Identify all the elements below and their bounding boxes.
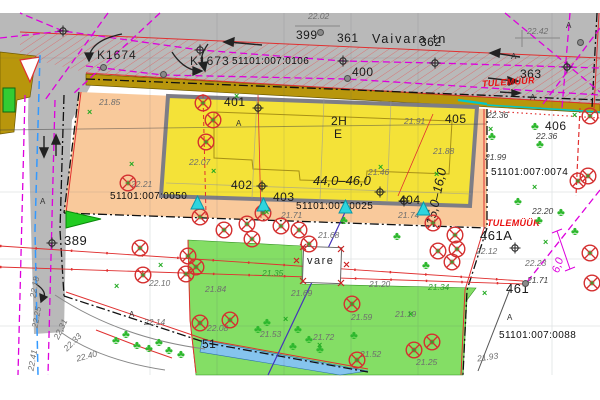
benchmark-icon <box>398 194 410 206</box>
map-label: 22.33 <box>62 332 83 353</box>
map-label: 51 <box>202 338 216 350</box>
entrance-arrow-icon <box>416 201 431 216</box>
manhole-icon <box>344 75 351 82</box>
entrance-arrow-icon <box>190 195 205 210</box>
map-label: A <box>40 198 45 206</box>
map-label: 21.20 <box>369 280 390 289</box>
benchmark-icon <box>194 43 206 55</box>
tree-icon: ♣ <box>557 206 565 218</box>
tree-icon: ♣ <box>155 336 163 348</box>
tree-icon: ♣ <box>393 230 401 242</box>
removed-tree-icon <box>191 314 209 332</box>
vegetation-mark-icon: × <box>129 160 134 169</box>
vegetation-mark-icon: × <box>543 238 548 247</box>
removed-tree-icon <box>197 133 215 151</box>
map-label: 21.91 <box>404 117 425 126</box>
map-label: 22.42 <box>527 27 548 36</box>
vegetation-mark-icon: × <box>378 163 383 172</box>
vegetation-mark-icon: × <box>434 170 439 179</box>
tree-icon: ♣ <box>535 214 543 226</box>
tree-icon: ♣ <box>536 138 544 150</box>
vegetation-mark-icon: × <box>317 341 322 350</box>
removed-tree-icon <box>424 214 442 232</box>
manhole-icon <box>100 64 107 71</box>
map-label: 22.31 <box>52 318 69 341</box>
manhole-icon <box>522 280 529 287</box>
map-label: 22.07 <box>189 158 210 167</box>
vegetation-mark-icon: × <box>211 167 216 176</box>
removed-tree-icon <box>423 333 441 351</box>
removed-tree-icon <box>272 217 290 235</box>
removed-tree-icon <box>131 239 149 257</box>
vegetation-mark-icon: × <box>114 282 119 291</box>
map-label: 22.14 <box>144 318 165 327</box>
map-label: 22.23 <box>525 259 546 268</box>
tree-icon: ♣ <box>165 344 173 356</box>
vegetation-mark-icon: × <box>532 183 537 192</box>
vegetation-mark-icon: × <box>87 108 92 117</box>
map-label: 362 <box>420 36 442 48</box>
map-label: K1674 <box>97 49 137 61</box>
removed-tree-icon <box>443 253 461 271</box>
map-label: 21.88 <box>433 147 454 156</box>
removed-tree-icon <box>177 265 195 283</box>
removed-tree-icon <box>583 274 600 292</box>
manhole-icon <box>577 39 584 46</box>
map-label: 21.35 <box>262 269 283 278</box>
benchmark-icon <box>561 60 573 72</box>
tree-icon: ♣ <box>254 323 262 335</box>
map-label: 22.18 <box>29 276 41 298</box>
map-label: 403 <box>273 191 295 203</box>
removed-tree-icon <box>221 311 239 329</box>
tree-icon: ♣ <box>112 334 120 346</box>
map-label: 21.71 <box>527 276 548 285</box>
vegetation-mark-icon: × <box>264 208 269 217</box>
map-label: A <box>129 311 134 319</box>
symbol-layer: 22.02399361Vaivara tn362K1674K167351101:… <box>0 0 600 400</box>
map-label: TULEMÜÜR <box>482 76 535 89</box>
map-label: 399 <box>296 29 318 41</box>
map-label: 361 <box>337 32 359 44</box>
map-label: 22.02 <box>308 12 329 21</box>
map-label: 22.10 <box>149 279 170 288</box>
map-label: 21.34 <box>428 283 449 292</box>
map-label: A <box>507 314 512 322</box>
tree-icon: ♣ <box>263 316 271 328</box>
benchmark-icon <box>46 236 58 248</box>
removed-tree-icon <box>194 94 212 112</box>
vegetation-mark-icon: × <box>482 289 487 298</box>
map-label: 21.99 <box>485 153 506 162</box>
tree-icon: ♣ <box>133 339 141 351</box>
benchmark-icon <box>374 185 386 197</box>
map-label: 21.59 <box>351 313 372 322</box>
removed-tree-icon <box>134 266 152 284</box>
map-label: A <box>236 120 241 128</box>
manhole-icon <box>317 29 324 36</box>
removed-tree-icon <box>569 172 587 190</box>
vegetation-mark-icon: × <box>408 310 413 319</box>
vegetation-mark-icon: × <box>488 125 493 134</box>
map-label: K1673 <box>190 55 230 67</box>
benchmark-icon <box>57 24 69 36</box>
map-label: 44,0–46,0 <box>313 174 371 187</box>
map-label: A <box>566 22 571 30</box>
map-label: 402 <box>231 179 253 191</box>
removed-tree-icon <box>343 295 361 313</box>
map-label: TULEMÜÜR <box>487 219 540 228</box>
vegetation-mark-icon: × <box>158 261 163 270</box>
benchmark-icon <box>429 56 441 68</box>
map-label: 22.40 <box>75 349 98 363</box>
tree-icon: ♣ <box>531 120 539 132</box>
removed-tree-icon <box>348 351 366 369</box>
map-label: 461A <box>480 229 512 242</box>
tree-icon: ♣ <box>305 333 313 345</box>
benchmark-icon <box>256 179 268 191</box>
map-label: 22.36 <box>487 111 508 120</box>
map-label: 51101:007:0025 <box>296 202 373 212</box>
map-label: 21.25 <box>416 358 437 367</box>
tree-icon: ♣ <box>294 323 302 335</box>
map-label: 22.41 <box>27 349 39 371</box>
benchmark-icon <box>509 241 521 253</box>
map-label: 21.93 <box>477 352 499 363</box>
tree-icon: ♣ <box>422 259 430 271</box>
tree-icon: ♣ <box>340 214 348 226</box>
removed-tree-icon <box>581 244 599 262</box>
map-label: 21.85 <box>99 98 120 107</box>
removed-tree-icon <box>581 107 599 125</box>
manhole-icon <box>160 71 167 78</box>
removed-tree-icon <box>119 174 137 192</box>
map-label: 21.53 <box>260 330 281 339</box>
tree-icon: ♣ <box>514 195 522 207</box>
removed-tree-icon <box>215 221 233 239</box>
tree-icon: ♣ <box>177 348 185 360</box>
map-label: 2H <box>331 115 347 127</box>
map-label: 51101:007:0074 <box>491 168 568 178</box>
tree-icon: ♣ <box>571 225 579 237</box>
tree-icon: ♣ <box>145 342 153 354</box>
map-label: 6,0 <box>551 257 566 275</box>
map-label: 51101:007:0106 <box>232 57 309 67</box>
map-label: A <box>530 94 535 102</box>
map-label: 405 <box>445 113 467 125</box>
map-label: 389 <box>64 234 87 247</box>
map-label: vare <box>307 256 334 267</box>
removed-tree-icon <box>191 208 209 226</box>
entrance-arrow-icon <box>338 199 353 214</box>
tree-icon: ♣ <box>122 328 130 340</box>
removed-tree-icon <box>405 341 423 359</box>
vegetation-mark-icon: × <box>572 111 577 120</box>
map-label: 51101:007:0050 <box>110 192 187 202</box>
vegetation-mark-icon: × <box>234 92 239 101</box>
site-plan-map: 22.02399361Vaivara tn362K1674K167351101:… <box>0 0 600 400</box>
map-label: A <box>511 53 516 61</box>
removed-tree-icon <box>204 111 222 129</box>
tree-icon: ♣ <box>350 329 358 341</box>
map-label: 21.68 <box>318 231 339 240</box>
benchmark-icon <box>252 101 264 113</box>
map-label: 21.69 <box>291 289 312 298</box>
removed-tree-icon <box>300 235 318 253</box>
benchmark-icon <box>337 54 349 66</box>
map-label: 51101:007:0088 <box>499 331 576 341</box>
map-label: 22.25 <box>31 306 43 328</box>
map-label: 22.12 <box>476 247 497 256</box>
map-label: E <box>334 128 343 140</box>
vegetation-mark-icon: × <box>283 315 288 324</box>
map-label: 400 <box>352 66 374 78</box>
removed-tree-icon <box>243 230 261 248</box>
tree-icon: ♣ <box>289 340 297 352</box>
map-label: 21.84 <box>205 285 226 294</box>
